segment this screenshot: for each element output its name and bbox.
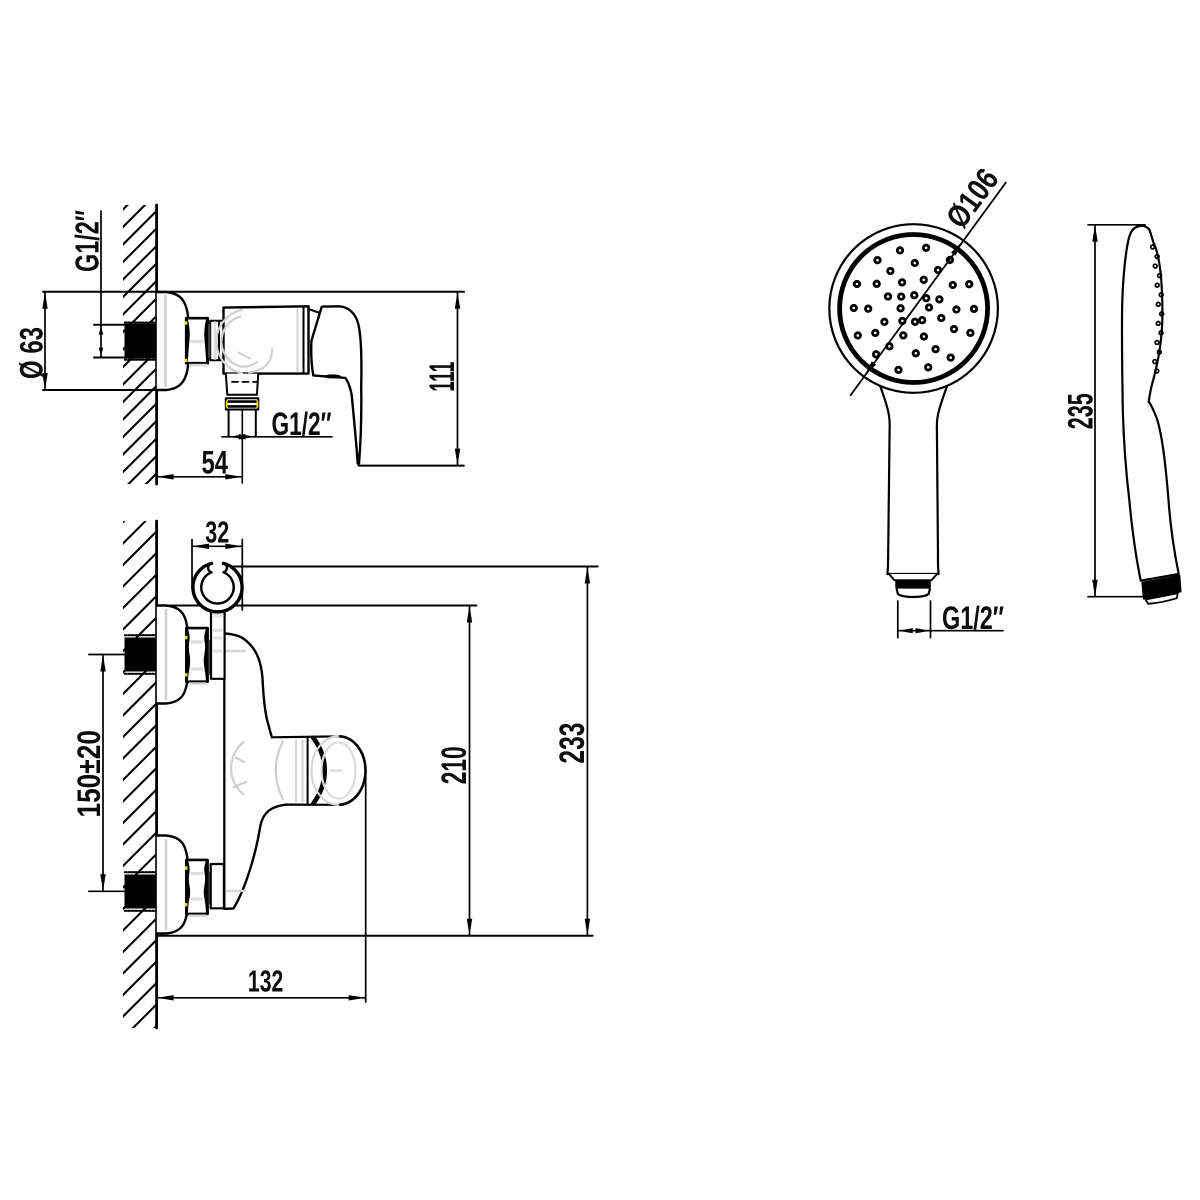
svg-text:G1/2″: G1/2″ bbox=[272, 406, 332, 442]
svg-text:111: 111 bbox=[423, 362, 462, 392]
svg-text:54: 54 bbox=[201, 445, 228, 481]
svg-text:233: 233 bbox=[553, 723, 592, 764]
svg-text:235: 235 bbox=[1061, 393, 1100, 429]
svg-text:210: 210 bbox=[435, 746, 474, 784]
svg-text:G1/2″: G1/2″ bbox=[69, 210, 106, 272]
svg-text:G1/2″: G1/2″ bbox=[942, 600, 1004, 636]
svg-text:132: 132 bbox=[248, 964, 283, 999]
svg-text:Ø 63: Ø 63 bbox=[14, 327, 50, 379]
svg-text:150±20: 150±20 bbox=[71, 730, 107, 818]
svg-text:32: 32 bbox=[205, 514, 229, 549]
